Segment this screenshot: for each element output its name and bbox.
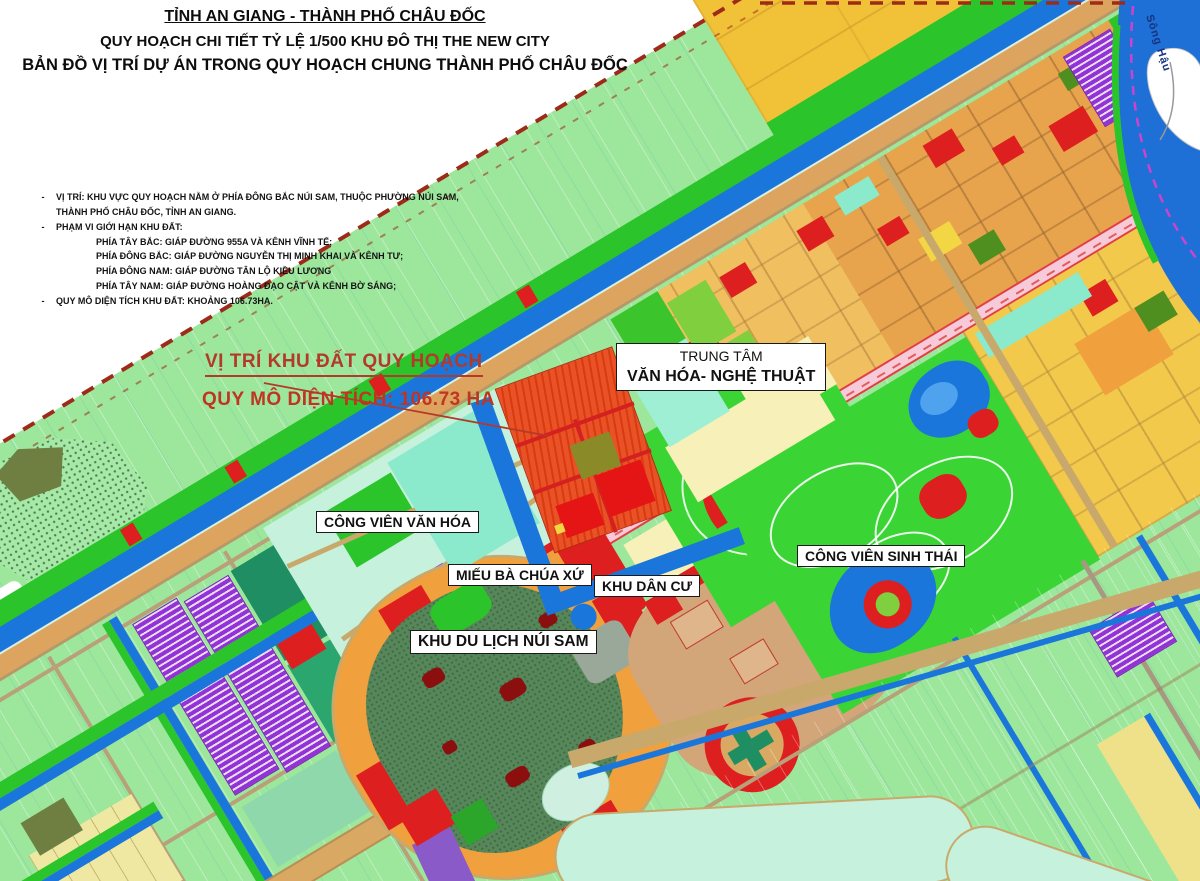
note-sub-sw: PHÍA TÂY NAM: GIÁP ĐƯỜNG HOÀNG ĐẠO CẬT V… [30,279,466,294]
label-cultural-center-line2: VĂN HÓA- NGHỆ THUẬT [627,366,815,388]
notes-block: - VỊ TRÍ: KHU VỰC QUY HOẠCH NẰM Ở PHÍA Đ… [30,190,466,309]
label-cultural-center-line1: TRUNG TÂM [627,347,815,366]
label-eco-park: CÔNG VIÊN SINH THÁI [797,545,965,567]
note-dash: - [30,190,56,220]
note-sub-se: PHÍA ĐÔNG NAM: GIÁP ĐƯỜNG TÂN LỘ KIỀU LƯ… [30,264,466,279]
site-location-annotation: VỊ TRÍ KHU ĐẤT QUY HOẠCH [205,351,483,377]
note-text-scope: PHẠM VI GIỚI HẠN KHU ĐẤT: [56,220,183,235]
label-residential: KHU DÂN CƯ [594,575,700,597]
planning-map-page: Sông Hậu TỈNH AN GIANG - THÀNH PHỐ CHÂU … [0,0,1200,881]
note-item: - QUY MÔ DIỆN TÍCH KHU ĐẤT: KHOẢNG 106.7… [30,294,466,309]
note-item: - PHẠM VI GIỚI HẠN KHU ĐẤT: [30,220,466,235]
label-culture-park: CÔNG VIÊN VĂN HÓA [316,511,479,533]
label-cultural-center: TRUNG TÂM VĂN HÓA- NGHỆ THUẬT [616,343,826,391]
title-line-1: TỈNH AN GIANG - THÀNH PHỐ CHÂU ĐỐC [0,5,650,30]
site-area-annotation: QUY MÔ DIỆN TÍCH: 106.73 HA [202,389,495,411]
title-line-2: QUY HOẠCH CHI TIẾT TỶ LỆ 1/500 KHU ĐÔ TH… [0,30,650,53]
label-temple: MIẾU BÀ CHÚA XỨ [448,564,592,586]
note-sub-ne: PHÍA ĐÔNG BẮC: GIÁP ĐƯỜNG NGUYỄN THỊ MIN… [30,249,466,264]
label-tourism-zone: KHU DU LỊCH NÚI SAM [410,630,597,654]
map-canvas [0,0,1200,881]
note-item: - VỊ TRÍ: KHU VỰC QUY HOẠCH NẰM Ở PHÍA Đ… [30,190,466,220]
title-line-3: BẢN ĐỒ VỊ TRÍ DỰ ÁN TRONG QUY HOẠCH CHUN… [0,53,650,79]
note-text-area: QUY MÔ DIỆN TÍCH KHU ĐẤT: KHOẢNG 106.73H… [56,294,273,309]
note-text-location: VỊ TRÍ: KHU VỰC QUY HOẠCH NẰM Ở PHÍA ĐÔN… [56,190,466,220]
note-sub-nw: PHÍA TÂY BẮC: GIÁP ĐƯỜNG 955A VÀ KÊNH VĨ… [30,235,466,250]
note-dash: - [30,294,56,309]
title-block: TỈNH AN GIANG - THÀNH PHỐ CHÂU ĐỐC QUY H… [0,5,650,79]
note-dash: - [30,220,56,235]
